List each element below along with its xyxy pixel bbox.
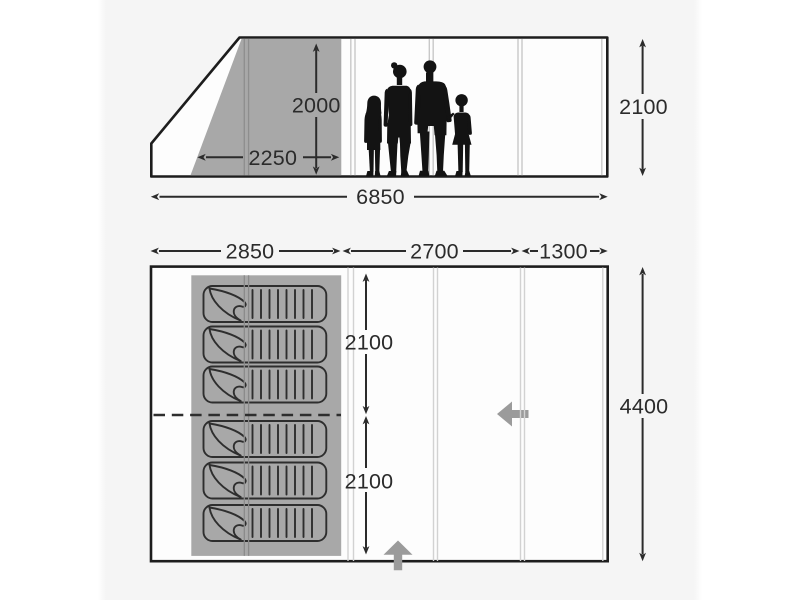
- svg-text:4400: 4400: [620, 395, 669, 419]
- svg-text:2100: 2100: [345, 331, 394, 355]
- svg-text:2700: 2700: [410, 239, 459, 263]
- svg-text:2100: 2100: [619, 95, 668, 119]
- svg-text:6850: 6850: [356, 185, 405, 209]
- svg-text:2850: 2850: [226, 239, 275, 263]
- svg-text:1300: 1300: [539, 239, 588, 263]
- svg-text:2250: 2250: [248, 146, 297, 170]
- svg-text:2000: 2000: [292, 94, 341, 118]
- svg-text:2100: 2100: [345, 470, 394, 494]
